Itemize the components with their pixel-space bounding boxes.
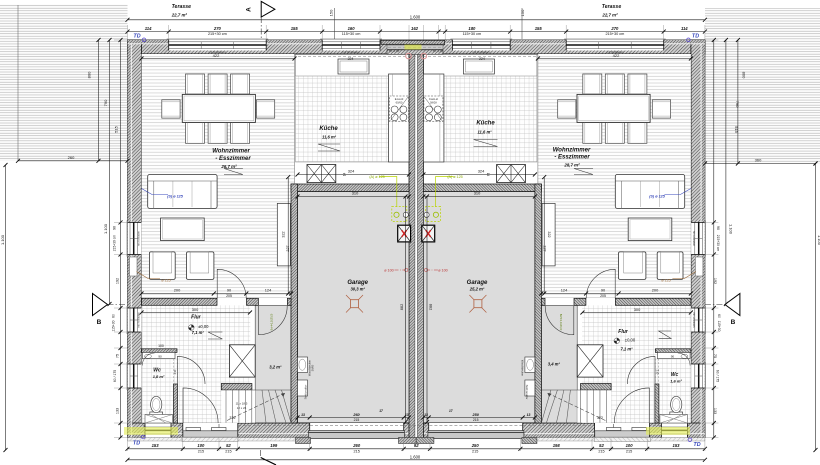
svg-text:11,6 m²: 11,6 m² — [322, 135, 337, 140]
svg-text:114: 114 — [145, 26, 152, 31]
svg-text:260: 260 — [352, 443, 361, 448]
svg-text:790: 790 — [103, 99, 108, 106]
svg-text:322: 322 — [547, 231, 551, 237]
svg-text:Br. 1,98: Br. 1,98 — [433, 49, 444, 53]
svg-text:3,2 m²: 3,2 m² — [269, 364, 282, 369]
svg-text:Terasse: Terasse — [602, 4, 622, 10]
svg-text:224: 224 — [479, 57, 485, 61]
svg-text:1.600: 1.600 — [410, 454, 421, 459]
svg-text:Wohnzimmer: Wohnzimmer — [553, 148, 591, 154]
svg-text:270: 270 — [610, 26, 619, 31]
svg-text:B: B — [97, 319, 102, 326]
svg-text:Garage: Garage — [467, 280, 488, 286]
svg-text:210: 210 — [173, 369, 177, 374]
svg-text:Sektionaltor: Sektionaltor — [304, 385, 308, 400]
svg-text:300: 300 — [192, 307, 199, 312]
svg-text:115+30: 115+30 — [112, 320, 116, 331]
svg-text:270: 270 — [213, 26, 222, 31]
svg-text:26,7 m²: 26,7 m² — [220, 164, 237, 169]
svg-text:22,7 m²: 22,7 m² — [171, 13, 188, 18]
svg-text:13: 13 — [527, 413, 531, 417]
svg-text:- Esszimmer: - Esszimmer — [215, 156, 251, 162]
svg-text:Sektionaltor: Sektionaltor — [525, 385, 529, 400]
svg-text:14: 14 — [486, 173, 490, 177]
svg-text:13: 13 — [405, 413, 409, 417]
svg-text:215: 215 — [354, 418, 360, 422]
svg-text:215: 215 — [225, 450, 231, 454]
svg-text:322: 322 — [597, 416, 603, 420]
svg-text:52: 52 — [226, 443, 231, 448]
svg-text:(S) ø 125: (S) ø 125 — [167, 195, 184, 199]
svg-text:mit Rollladen: mit Rollladen — [208, 50, 226, 54]
svg-text:800: 800 — [742, 72, 747, 79]
svg-text:90: 90 — [671, 354, 675, 358]
svg-text:mit Rollladen: mit Rollladen — [606, 50, 624, 54]
svg-text:250: 250 — [472, 413, 480, 417]
svg-text:TD: TD — [692, 34, 699, 40]
svg-text:ø 100: ø 100 — [438, 269, 447, 273]
svg-text:7,1 m²: 7,1 m² — [192, 330, 205, 335]
svg-text:114: 114 — [681, 26, 688, 31]
svg-text:155: 155 — [535, 26, 543, 31]
svg-text:1,8 m²: 1,8 m² — [153, 374, 165, 379]
svg-text:Terasse: Terasse — [172, 4, 192, 10]
svg-text:200: 200 — [652, 288, 659, 293]
svg-text:52: 52 — [599, 443, 604, 448]
svg-text:250: 250 — [471, 443, 480, 448]
svg-text:mit Rollladen: mit Rollladen — [472, 50, 490, 54]
svg-text:28,7 m²: 28,7 m² — [563, 163, 580, 168]
svg-text:162: 162 — [411, 26, 419, 31]
svg-text:3,4 m²: 3,4 m² — [548, 362, 561, 367]
svg-text:±0,00: ±0,00 — [625, 338, 636, 343]
svg-text:205: 205 — [226, 294, 232, 298]
svg-text:882: 882 — [429, 304, 434, 311]
svg-text:TD: TD — [133, 34, 140, 40]
svg-text:11 x 18,5: 11 x 18,5 — [236, 402, 248, 406]
svg-text:124: 124 — [561, 288, 568, 293]
svg-text:322: 322 — [282, 231, 286, 237]
svg-text:1.100: 1.100 — [0, 234, 5, 245]
svg-text:TD: TD — [133, 441, 140, 447]
svg-text:A: A — [246, 7, 253, 12]
svg-text:mit Rollladen: mit Rollladen — [692, 231, 696, 247]
svg-text:215+30 cm: 215+30 cm — [716, 235, 720, 252]
svg-text:310: 310 — [474, 191, 481, 196]
svg-text:124: 124 — [265, 288, 272, 293]
svg-text:115+30 cm: 115+30 cm — [463, 32, 482, 36]
svg-text:17: 17 — [379, 409, 383, 413]
svg-text:205: 205 — [600, 294, 606, 298]
svg-text:13: 13 — [424, 413, 428, 417]
svg-text:ø 100: ø 100 — [384, 269, 393, 273]
svg-text:±0,00: ±0,00 — [198, 324, 209, 329]
svg-text:TD: TD — [693, 442, 700, 448]
svg-text:75: 75 — [713, 354, 717, 358]
svg-text:1.600: 1.600 — [410, 14, 421, 19]
svg-text:215: 215 — [198, 450, 204, 454]
svg-text:133: 133 — [713, 408, 717, 414]
svg-text:180: 180 — [468, 26, 476, 31]
svg-text:360: 360 — [755, 158, 762, 163]
svg-text:Küche: Küche — [476, 121, 495, 127]
svg-text:Flur: Flur — [618, 329, 628, 335]
svg-text:215+30 cm: 215+30 cm — [113, 235, 117, 252]
svg-text:153: 153 — [673, 443, 681, 448]
svg-text:60 / 175: 60 / 175 — [113, 370, 117, 382]
svg-text:50/60: 50/60 — [311, 364, 315, 371]
svg-text:7,1 m²: 7,1 m² — [620, 347, 633, 352]
svg-text:192: 192 — [116, 278, 120, 284]
svg-text:310: 310 — [352, 191, 359, 196]
svg-text:882: 882 — [399, 304, 404, 311]
svg-text:324: 324 — [348, 168, 355, 173]
svg-text:300: 300 — [634, 307, 641, 312]
svg-text:324: 324 — [478, 168, 485, 173]
svg-text:Br. 1,98: Br. 1,98 — [389, 49, 400, 53]
svg-text:11,6 m²: 11,6 m² — [477, 130, 492, 135]
svg-text:(A) ø 125: (A) ø 125 — [369, 175, 384, 179]
svg-text:192: 192 — [713, 278, 717, 284]
svg-text:215: 215 — [598, 450, 604, 454]
svg-text:75: 75 — [116, 354, 120, 358]
svg-text:BxH=1,10/2,00: BxH=1,10/2,00 — [271, 313, 274, 330]
svg-text:ø 125: ø 125 — [161, 279, 170, 283]
svg-text:199: 199 — [270, 443, 278, 448]
svg-text:515: 515 — [114, 125, 119, 132]
svg-text:Wohnzimmer: Wohnzimmer — [212, 149, 250, 155]
svg-text:Waschbecken: Waschbecken — [521, 360, 525, 377]
svg-text:13: 13 — [301, 413, 305, 417]
svg-text:115+30: 115+30 — [717, 321, 721, 332]
svg-text:515: 515 — [734, 126, 739, 133]
svg-text:215+30 cm: 215+30 cm — [208, 32, 227, 36]
svg-text:215: 215 — [472, 450, 478, 454]
svg-text:260: 260 — [352, 413, 360, 417]
svg-text:ø 125: ø 125 — [661, 279, 670, 283]
svg-text:mit Rollladen: mit Rollladen — [137, 230, 141, 246]
svg-text:Flur: Flur — [191, 315, 201, 321]
svg-text:215: 215 — [354, 450, 360, 454]
svg-text:90: 90 — [113, 226, 117, 230]
svg-text:- Esszimmer: - Esszimmer — [554, 155, 590, 161]
svg-text:150: 150 — [329, 9, 334, 16]
svg-text:215+30 cm: 215+30 cm — [605, 32, 624, 36]
svg-text:12 x 26: 12 x 26 — [237, 406, 247, 410]
svg-text:215: 215 — [626, 450, 632, 454]
svg-text:1.100: 1.100 — [103, 223, 108, 234]
svg-text:30,3 m²: 30,3 m² — [350, 287, 365, 292]
svg-text:60: 60 — [717, 314, 721, 318]
svg-text:Küche: Küche — [319, 126, 338, 132]
svg-text:1,6 m²: 1,6 m² — [670, 379, 682, 384]
svg-text:210: 210 — [655, 370, 659, 375]
svg-text:200: 200 — [174, 288, 181, 293]
svg-text:90: 90 — [158, 354, 162, 358]
svg-text:92: 92 — [414, 443, 419, 448]
svg-text:100: 100 — [158, 344, 164, 348]
svg-text:800: 800 — [87, 71, 92, 78]
svg-text:150: 150 — [520, 9, 525, 16]
svg-text:(S) ø 125: (S) ø 125 — [649, 195, 666, 199]
svg-text:17: 17 — [449, 409, 453, 413]
svg-text:215: 215 — [473, 418, 479, 422]
svg-text:133: 133 — [116, 408, 120, 414]
svg-text:115+30 cm: 115+30 cm — [342, 32, 361, 36]
svg-text:155: 155 — [291, 26, 299, 31]
svg-text:mit Rollladen: mit Rollladen — [342, 50, 360, 54]
svg-text:mit Rollladen: mit Rollladen — [137, 312, 141, 328]
svg-text:322: 322 — [229, 416, 235, 420]
svg-text:25,2 m²: 25,2 m² — [469, 287, 485, 292]
svg-text:60: 60 — [112, 314, 116, 318]
svg-text:100: 100 — [197, 443, 205, 448]
svg-text:BxH=1,10/2,00: BxH=1,10/2,00 — [559, 314, 562, 331]
svg-text:(A) ø 125: (A) ø 125 — [447, 175, 462, 179]
svg-text:1.100: 1.100 — [729, 224, 734, 235]
svg-text:Garage: Garage — [347, 280, 368, 286]
svg-text:60 / 175: 60 / 175 — [716, 370, 720, 382]
svg-text:60/60: 60/60 — [396, 101, 403, 105]
svg-text:224: 224 — [348, 57, 354, 61]
svg-text:B: B — [731, 319, 736, 326]
svg-text:90: 90 — [716, 226, 720, 230]
svg-text:22,7 m²: 22,7 m² — [601, 13, 618, 18]
svg-text:Wc: Wc — [671, 372, 679, 378]
svg-text:14: 14 — [343, 173, 347, 177]
svg-text:mit Rollladen: mit Rollladen — [692, 313, 696, 329]
svg-text:160: 160 — [348, 26, 356, 31]
svg-text:790: 790 — [735, 101, 740, 108]
svg-text:198: 198 — [553, 443, 561, 448]
svg-text:Wc: Wc — [153, 368, 161, 374]
svg-text:E-Herd: E-Herd — [395, 97, 404, 101]
svg-text:153: 153 — [152, 443, 160, 448]
svg-text:260: 260 — [68, 155, 75, 160]
svg-text:100: 100 — [626, 443, 634, 448]
